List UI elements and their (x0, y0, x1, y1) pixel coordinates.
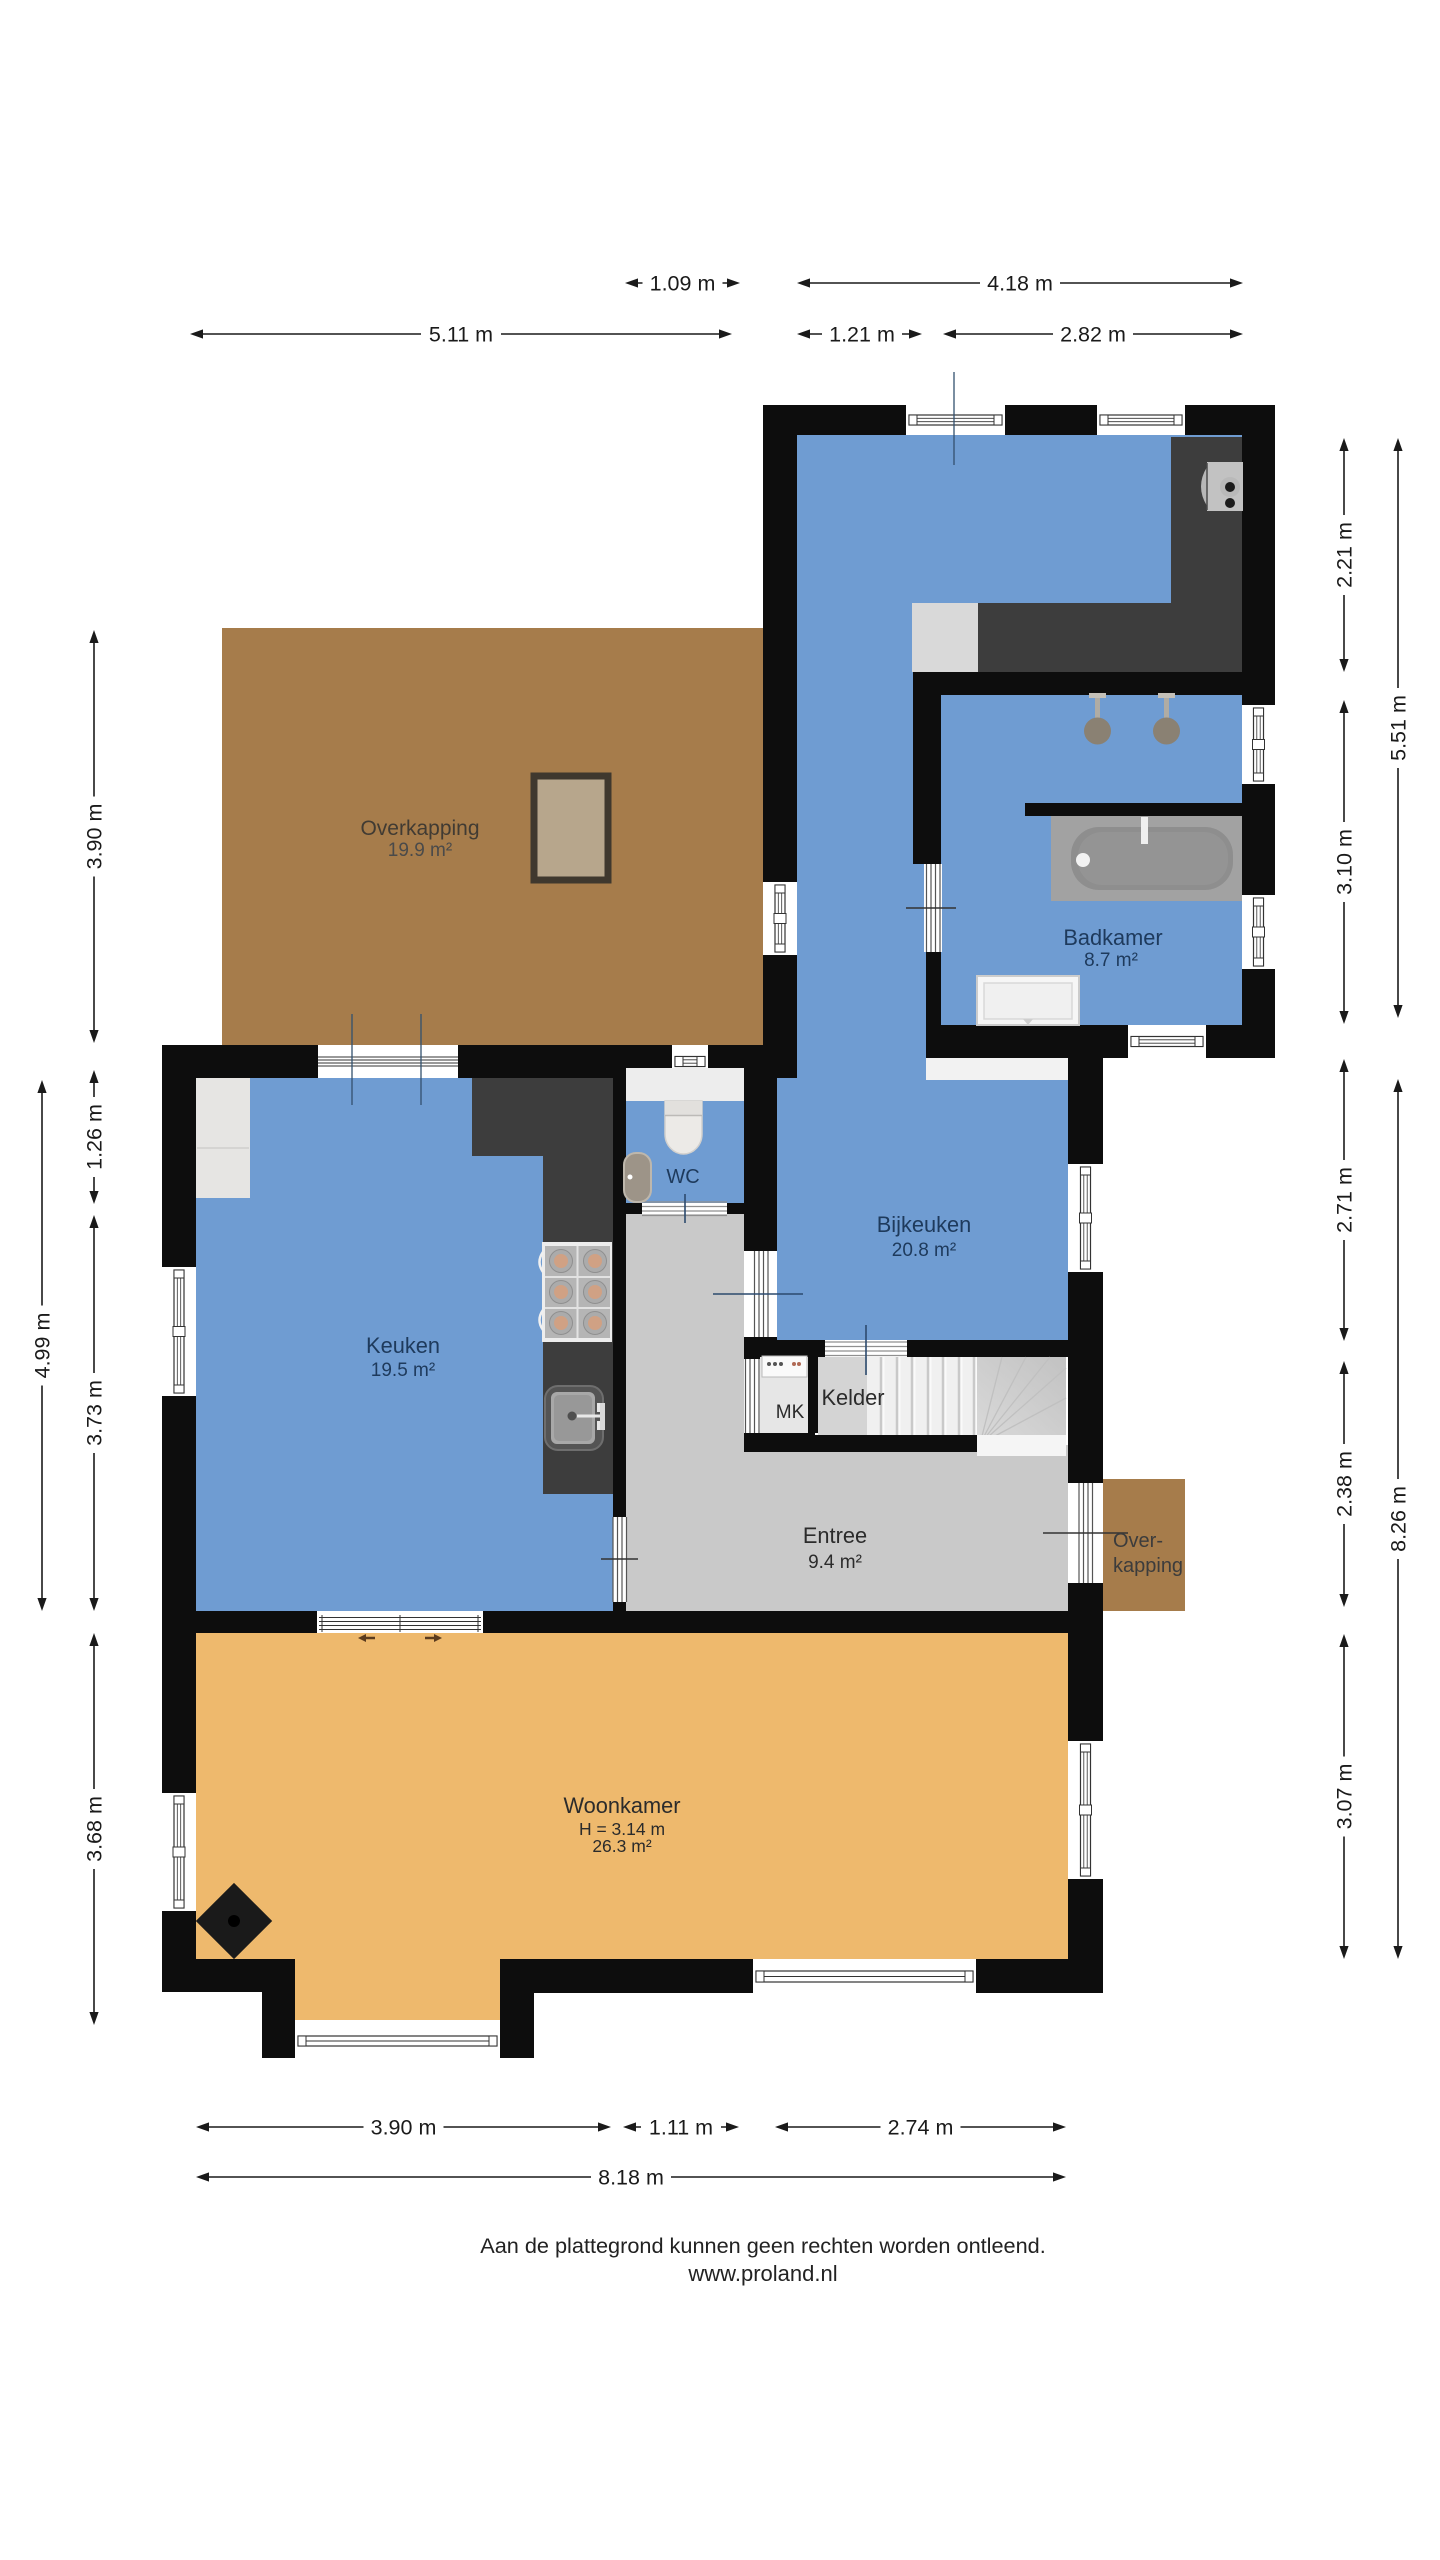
svg-text:26.3 m²: 26.3 m² (592, 1836, 651, 1856)
svg-text:kapping: kapping (1113, 1555, 1183, 1577)
svg-text:2.21 m: 2.21 m (1333, 522, 1357, 588)
svg-text:1.11 m: 1.11 m (649, 2116, 713, 2140)
svg-text:8.18 m: 8.18 m (598, 2166, 664, 2190)
svg-text:3.10 m: 3.10 m (1333, 829, 1357, 895)
svg-text:2.71 m: 2.71 m (1333, 1167, 1357, 1233)
svg-text:3.90 m: 3.90 m (371, 2116, 437, 2140)
svg-text:3.68 m: 3.68 m (83, 1796, 107, 1862)
svg-text:Entree: Entree (803, 1523, 867, 1548)
svg-text:3.73 m: 3.73 m (83, 1380, 107, 1446)
svg-text:2.82 m: 2.82 m (1060, 323, 1126, 347)
svg-text:Bijkeuken: Bijkeuken (877, 1212, 972, 1237)
svg-text:Over-: Over- (1113, 1530, 1163, 1552)
svg-text:Keuken: Keuken (366, 1333, 440, 1358)
svg-text:Woonkamer: Woonkamer (563, 1793, 680, 1818)
svg-text:1.21 m: 1.21 m (829, 323, 895, 347)
svg-text:8.7 m²: 8.7 m² (1084, 950, 1138, 971)
svg-text:3.07 m: 3.07 m (1333, 1764, 1357, 1830)
svg-text:5.51 m: 5.51 m (1387, 695, 1411, 761)
svg-text:4.18 m: 4.18 m (987, 272, 1053, 296)
svg-text:2.38 m: 2.38 m (1333, 1451, 1357, 1517)
svg-text:Aan de plattegrond kunnen geen: Aan de plattegrond kunnen geen rechten w… (480, 2233, 1046, 2258)
svg-text:Badkamer: Badkamer (1063, 925, 1162, 950)
svg-text:8.26 m: 8.26 m (1387, 1486, 1411, 1552)
svg-text:Overkapping: Overkapping (360, 817, 479, 840)
svg-text:9.4 m²: 9.4 m² (808, 1552, 862, 1573)
svg-text:19.9 m²: 19.9 m² (388, 840, 452, 861)
svg-text:Kelder: Kelder (821, 1385, 884, 1410)
svg-text:19.5 m²: 19.5 m² (371, 1360, 435, 1381)
svg-text:www.proland.nl: www.proland.nl (687, 2261, 837, 2286)
svg-text:1.09 m: 1.09 m (650, 272, 716, 296)
svg-text:2.74 m: 2.74 m (888, 2116, 954, 2140)
svg-text:20.8 m²: 20.8 m² (892, 1240, 956, 1261)
svg-text:1.26 m: 1.26 m (83, 1104, 107, 1170)
svg-text:WC: WC (666, 1166, 699, 1188)
svg-text:MK: MK (776, 1402, 805, 1423)
svg-text:4.99 m: 4.99 m (31, 1313, 55, 1379)
svg-text:3.90 m: 3.90 m (83, 804, 107, 870)
svg-text:5.11 m: 5.11 m (429, 323, 493, 347)
